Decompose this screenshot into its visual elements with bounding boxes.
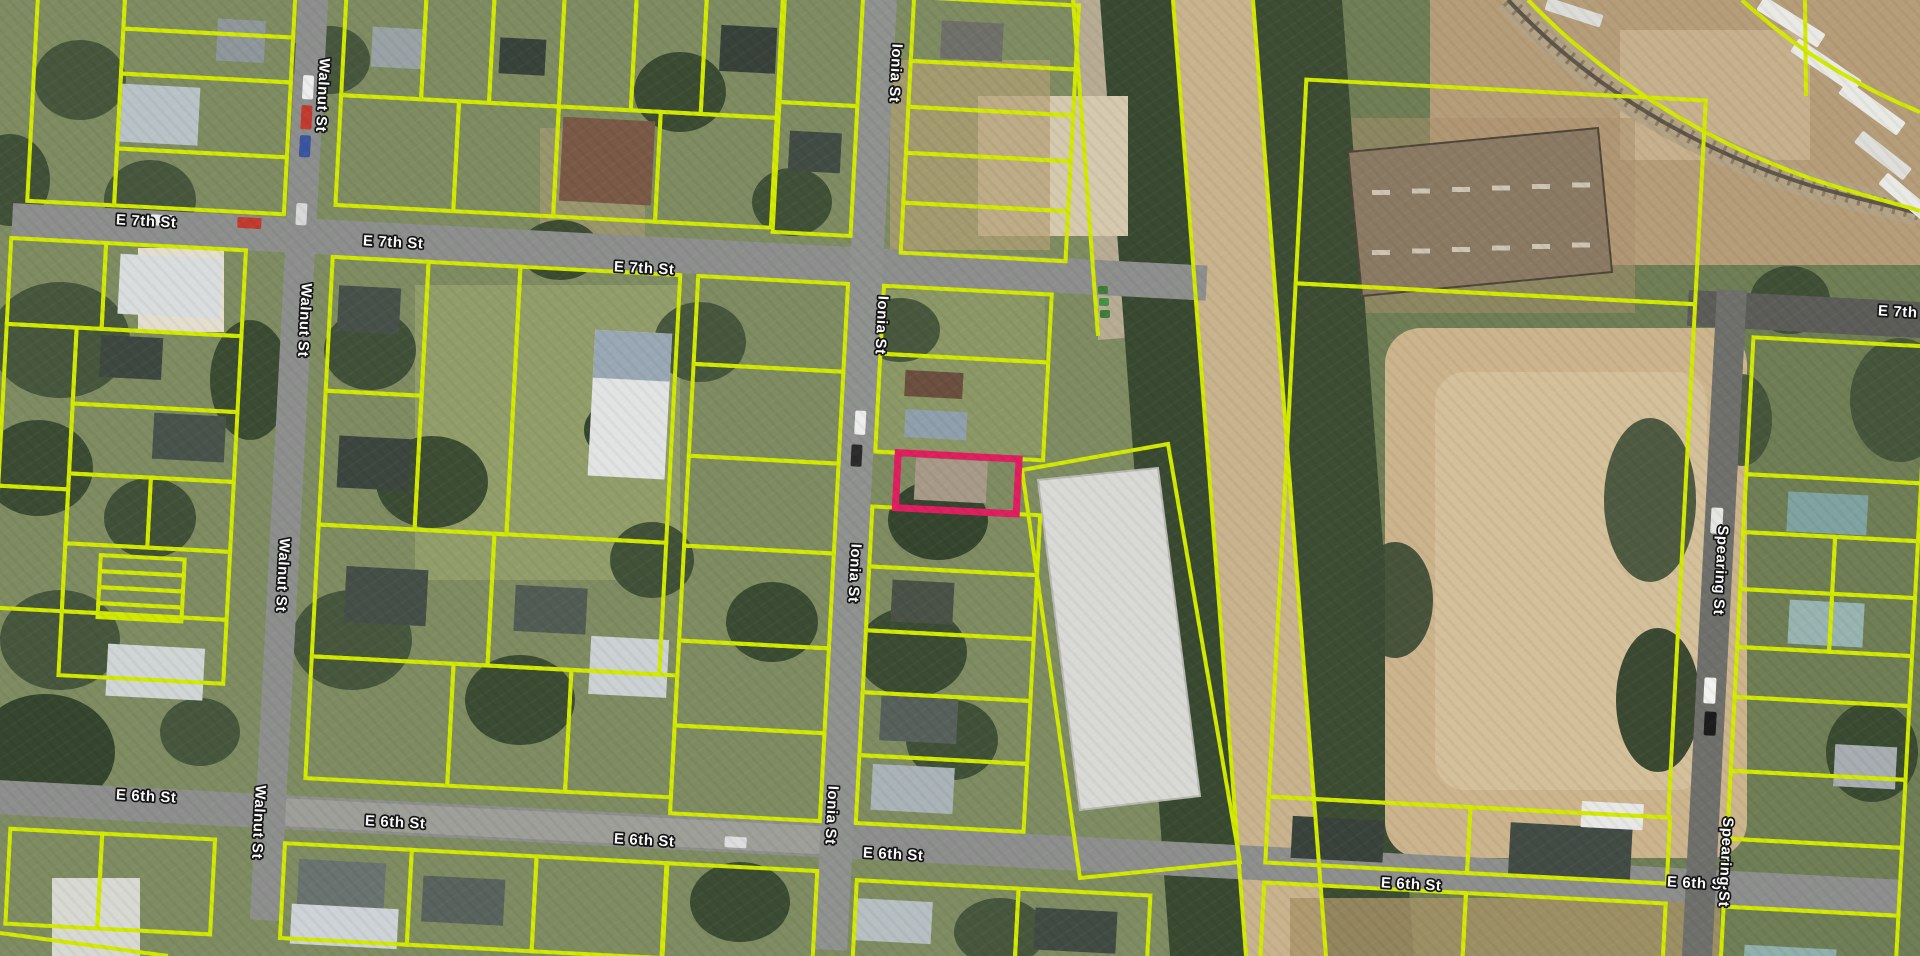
building-roof <box>914 458 988 504</box>
street-label: E 7th St <box>363 232 424 252</box>
roof-vent <box>1572 183 1590 188</box>
roof-vent <box>1572 243 1590 248</box>
building-roof <box>216 19 266 63</box>
vehicle <box>1703 677 1716 704</box>
parcel-boundary-line[interactable] <box>1805 0 1806 96</box>
tree-canopy <box>34 40 126 120</box>
street-label: E 7th St <box>1878 302 1920 322</box>
tree-canopy <box>634 52 726 132</box>
building-roof <box>499 37 547 75</box>
roof-vent <box>1372 250 1390 255</box>
street-label: E 6th St <box>614 830 675 850</box>
roof-vent <box>1452 247 1470 252</box>
roof-vent <box>1492 246 1510 251</box>
building-roof <box>940 20 1004 61</box>
vehicle <box>300 105 312 130</box>
street-label: Ionia St <box>844 543 864 603</box>
building-roof <box>371 27 425 70</box>
building-roof <box>904 409 967 440</box>
building-roof <box>1786 491 1868 535</box>
map-viewport[interactable]: E 7th StE 7th StE 7th StE 7th StE 6th St… <box>0 0 1920 956</box>
building-roof <box>879 694 958 744</box>
roof-vent <box>1532 244 1550 249</box>
vehicle <box>302 75 314 100</box>
building-roof <box>337 285 401 334</box>
roof-vent <box>1412 189 1430 194</box>
vehicle-trailer <box>1100 310 1110 318</box>
industrial-roof <box>1348 128 1612 296</box>
building-roof <box>890 580 954 625</box>
building-roof <box>854 898 933 944</box>
building-roof <box>344 566 429 626</box>
building-roof <box>588 636 669 698</box>
vehicle-trailer <box>1099 298 1109 306</box>
tree-canopy <box>160 698 240 766</box>
street-label: Ionia St <box>885 43 905 103</box>
tree-canopy <box>726 582 818 662</box>
street-label: E 7th St <box>614 258 675 278</box>
terrain-patch <box>1290 898 1720 956</box>
vehicle <box>850 444 862 467</box>
tree-canopy <box>1357 542 1433 658</box>
roof-vent <box>1452 187 1470 192</box>
vehicle-trailer <box>1098 286 1108 294</box>
aerial-parcel-map[interactable]: E 7th StE 7th StE 7th StE 7th StE 6th St… <box>0 0 1920 956</box>
building-roof <box>119 84 200 146</box>
building-roof <box>719 25 777 74</box>
vehicle <box>295 203 307 226</box>
street-label: E 6th St <box>116 786 177 806</box>
street-label: E 6th St <box>365 812 426 832</box>
building-roof <box>99 335 163 380</box>
street-label: E 6th St <box>863 844 924 864</box>
building-roof <box>1508 822 1633 880</box>
building-roof <box>513 585 587 635</box>
tree-canopy <box>1616 628 1700 772</box>
building-roof <box>593 330 672 382</box>
building-roof <box>421 875 505 925</box>
street-label: Ionia St <box>871 295 891 355</box>
vehicle <box>724 836 747 848</box>
building-roof <box>904 370 963 399</box>
roof-vent <box>1412 249 1430 254</box>
tree-canopy <box>690 862 790 942</box>
building-roof <box>1833 744 1897 789</box>
building-roof <box>105 644 205 701</box>
building-roof <box>1033 908 1117 954</box>
building-roof <box>117 254 222 319</box>
building-roof <box>337 435 412 491</box>
building-roof <box>152 413 226 463</box>
vehicle <box>854 410 866 435</box>
roof-vent <box>1532 184 1550 189</box>
vehicle <box>299 135 311 158</box>
street-label: E 7th St <box>116 211 177 231</box>
roof-vent <box>1372 190 1390 195</box>
building-roof <box>559 117 655 206</box>
roof-vent <box>1492 186 1510 191</box>
vehicle <box>1704 711 1717 736</box>
building-roof <box>1291 816 1385 863</box>
building-roof <box>788 131 842 174</box>
vehicle <box>237 217 262 229</box>
building-roof <box>1787 600 1864 648</box>
street-label: Ionia St <box>821 785 841 845</box>
building-roof <box>871 764 955 814</box>
street-label: E 6th St <box>1381 874 1442 894</box>
